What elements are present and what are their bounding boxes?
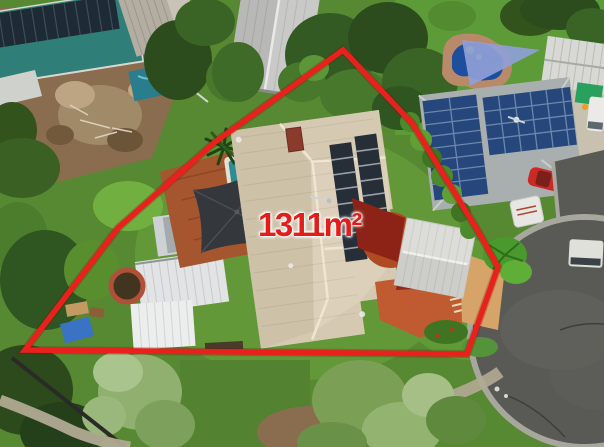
orange-item <box>582 104 588 110</box>
white-caravan <box>509 195 544 228</box>
red-flowers <box>436 334 440 338</box>
aerial-property-photo: 1311m² <box>0 0 604 447</box>
outbuilding-roof-c <box>130 300 195 350</box>
brick-garden-bed <box>111 270 143 302</box>
white-truck <box>568 239 603 268</box>
shrub <box>424 320 468 344</box>
red-flowers <box>450 328 454 332</box>
area-label: 1311m² <box>258 206 361 244</box>
brick-chimney <box>286 127 304 152</box>
